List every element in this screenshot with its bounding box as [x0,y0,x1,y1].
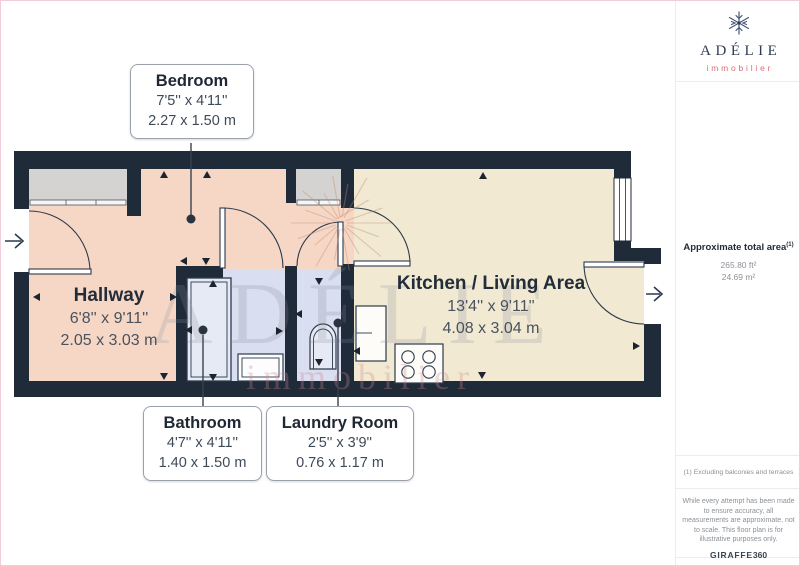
callout-bathroom: Bathroom 4'7'' x 4'11'' 1.40 x 1.50 m [143,406,262,481]
room-dims-imperial: 2'5'' x 3'9'' [269,434,411,454]
giraffe360-credit: GIRAFFE360 [682,550,795,560]
total-area-block: Approximate total area(1) 265.80 ft² 24.… [676,242,800,283]
room-dims-imperial: 4'7'' x 4'11'' [146,434,259,454]
wall-right-door-upper [644,248,661,264]
brand-tagline: immobilier [676,63,800,73]
disclaimer-block: While every attempt has been made to ens… [676,489,800,558]
room-dims-metric: 2.27 x 1.50 m [133,112,251,132]
callout-bedroom: Bedroom 7'5'' x 4'11'' 2.27 x 1.50 m [130,64,254,139]
watermark-brand: ADÉLIE [149,266,563,363]
wall-right-upper [614,169,631,178]
wall-bedroom-closet [286,169,296,203]
room-dims-imperial: 7'5'' x 4'11'' [133,92,251,112]
wall-stub-closet [127,169,141,216]
snowflake-icon [726,10,752,36]
floor-closet-left [29,169,127,201]
window-kitchen [614,178,631,241]
room-name: Bathroom [146,413,259,434]
room-name: Laundry Room [269,413,411,434]
footnote-block: (1) Excluding balconies and terraces [676,455,800,489]
wall-left-upper [14,151,29,209]
total-area-label-text: Approximate total area [683,242,786,253]
floorplan-page: ADÉLIE immobilier [0,0,800,566]
disclaimer-text: While every attempt has been made to ens… [682,497,795,545]
total-area-footnote-ref: (1) [786,242,793,248]
wall-top [14,151,631,169]
wall-right-door-lower [644,324,661,383]
entry-arrow-icon [5,234,23,248]
total-area-metric: 24.69 m² [676,271,800,283]
room-name: Bedroom [133,71,251,92]
credit-suffix: 360 [753,550,767,560]
credit-name: GIRAFFE [710,550,753,560]
brand-name: ADÉLIE [676,43,800,60]
footnote-text: (1) Excluding balconies and terraces [684,469,794,476]
watermark-tagline: immobilier [246,357,476,397]
total-area-imperial: 265.80 ft² [676,259,800,271]
room-dims-metric: 0.76 x 1.17 m [269,454,411,474]
wall-left-lower [14,272,29,397]
total-area-label: Approximate total area(1) [676,242,800,253]
wall-right-mid [614,241,631,248]
callout-laundry: Laundry Room 2'5'' x 3'9'' 0.76 x 1.17 m [266,406,414,481]
logo-block: ADÉLIE immobilier [676,1,800,82]
exit-arrow-icon [646,287,662,301]
sidebar: ADÉLIE immobilier Approximate total area… [675,1,800,566]
room-dims-metric: 1.40 x 1.50 m [146,454,259,474]
